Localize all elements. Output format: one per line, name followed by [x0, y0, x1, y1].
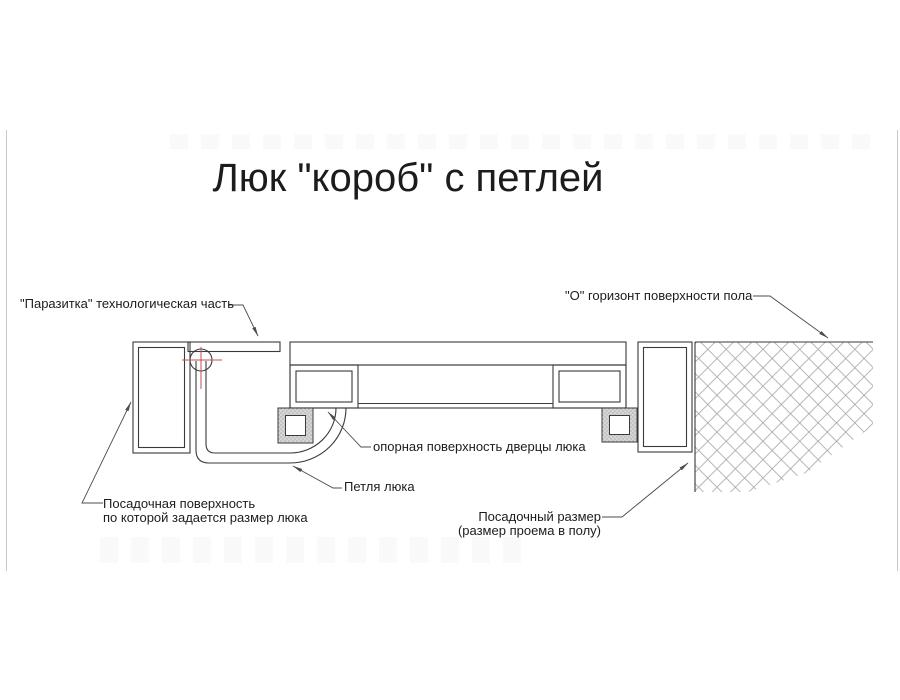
label-seating-size-line2: (размер проема в полу)	[430, 524, 601, 538]
label-seating-surface-line1: Посадочная поверхность	[103, 497, 308, 511]
leader-seating-surface	[82, 402, 131, 503]
left-frame-profile	[133, 342, 190, 453]
door-leaf	[290, 342, 626, 408]
label-hinge: Петля люка	[344, 480, 415, 494]
hinge-strap	[196, 361, 346, 463]
label-seating-size: Посадочный размер (размер проема в полу)	[430, 510, 601, 538]
label-seating-surface: Посадочная поверхность по которой задает…	[103, 497, 308, 525]
right-frame-profile	[638, 342, 692, 452]
door-tile-slab	[290, 342, 626, 365]
seal-square-right	[602, 408, 637, 442]
label-parasitka: "Паразитка" технологическая часть	[20, 297, 234, 311]
parasitka-part	[188, 342, 280, 352]
door-left-profile	[290, 365, 358, 408]
hinge-pin	[182, 347, 222, 389]
door-right-profile	[553, 365, 626, 408]
label-seating-size-line1: Посадочный размер	[430, 510, 601, 524]
leader-seating-size	[602, 463, 688, 517]
leader-floor-horizon	[753, 296, 828, 338]
seal-square-left	[278, 408, 313, 443]
floor-mass	[695, 342, 873, 492]
label-floor-horizon: "О" горизонт поверхности пола	[565, 289, 752, 303]
technical-drawing	[0, 0, 900, 700]
label-seating-surface-line2: по которой задается размер люка	[103, 511, 308, 525]
drawing-page: Люк "короб" с петлей	[0, 0, 900, 700]
leader-hinge	[293, 466, 342, 488]
label-door-support: опорная поверхность дверцы люка	[373, 440, 586, 454]
